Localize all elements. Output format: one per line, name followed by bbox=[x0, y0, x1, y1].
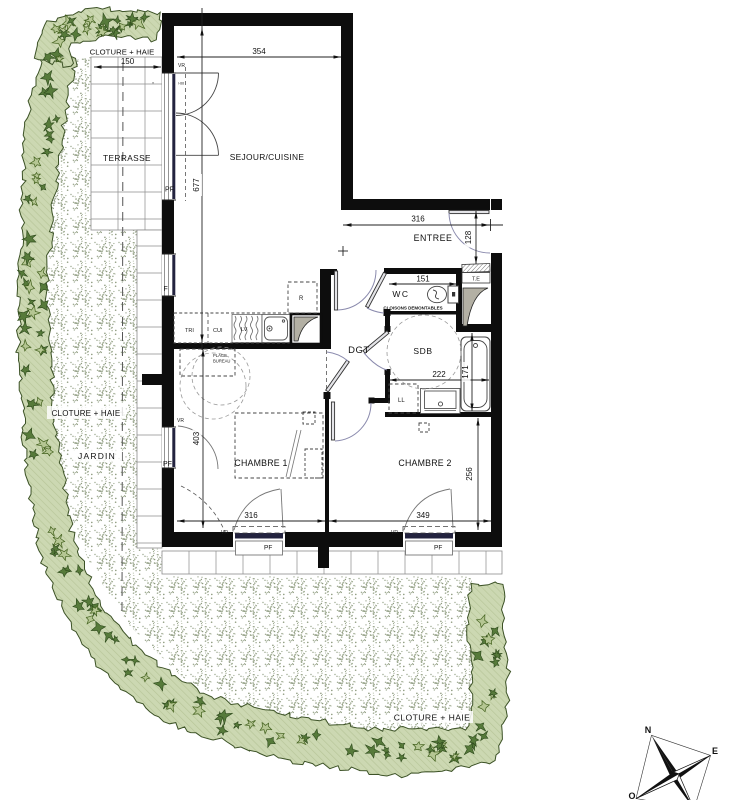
svg-text:N: N bbox=[645, 725, 652, 735]
svg-text:316: 316 bbox=[244, 511, 258, 520]
svg-text:ENTREE: ENTREE bbox=[414, 233, 453, 243]
svg-text:CLOISONS DEMONTABLES: CLOISONS DEMONTABLES bbox=[383, 306, 442, 311]
svg-text:VR: VR bbox=[221, 530, 228, 536]
svg-text:BUREAU: BUREAU bbox=[213, 359, 230, 364]
svg-text:F: F bbox=[164, 286, 168, 293]
svg-text:LV: LV bbox=[241, 327, 248, 333]
svg-text:PF: PF bbox=[434, 545, 442, 552]
svg-text:PLAGE: PLAGE bbox=[213, 353, 227, 358]
svg-text:E: E bbox=[712, 746, 718, 756]
svg-text:222: 222 bbox=[432, 370, 446, 379]
svg-text:R: R bbox=[299, 296, 304, 302]
svg-text:SEJOUR/CUISINE: SEJOUR/CUISINE bbox=[230, 152, 305, 162]
svg-text:I-88: I-88 bbox=[178, 82, 184, 86]
svg-text:150: 150 bbox=[121, 57, 135, 66]
svg-text:VR: VR bbox=[391, 530, 398, 536]
svg-text:CLOTURE + HAIE: CLOTURE + HAIE bbox=[394, 713, 471, 723]
svg-text:DGT: DGT bbox=[348, 345, 370, 356]
svg-text:151: 151 bbox=[416, 275, 430, 284]
svg-text:171: 171 bbox=[461, 365, 470, 379]
svg-text:CHAMBRE 1: CHAMBRE 1 bbox=[234, 458, 287, 468]
svg-text:CUI: CUI bbox=[213, 328, 223, 334]
svg-text:PF: PF bbox=[264, 545, 272, 552]
svg-text:PF: PF bbox=[165, 187, 174, 194]
svg-text:TRI: TRI bbox=[185, 328, 194, 334]
svg-text:VR: VR bbox=[177, 418, 184, 424]
svg-text:LL: LL bbox=[398, 398, 405, 404]
svg-text:SDB: SDB bbox=[413, 346, 432, 356]
svg-text:O: O bbox=[628, 791, 635, 800]
svg-text:TERRASSE: TERRASSE bbox=[103, 153, 151, 163]
svg-text:128: 128 bbox=[464, 230, 473, 244]
svg-text:PF: PF bbox=[163, 461, 172, 468]
svg-text:JARDIN: JARDIN bbox=[78, 451, 116, 461]
svg-text:CLOTURE + HAIE: CLOTURE + HAIE bbox=[90, 48, 155, 57]
svg-text:CLOTURE + HAIE: CLOTURE + HAIE bbox=[52, 409, 121, 418]
svg-text:354: 354 bbox=[252, 47, 266, 56]
svg-text:VR: VR bbox=[178, 63, 185, 69]
svg-text:CHAMBRE 2: CHAMBRE 2 bbox=[398, 458, 451, 468]
svg-text:349: 349 bbox=[416, 511, 430, 520]
svg-text:T.E: T.E bbox=[472, 277, 480, 283]
svg-text:256: 256 bbox=[465, 467, 474, 481]
svg-text:403: 403 bbox=[192, 431, 201, 445]
svg-text:316: 316 bbox=[411, 215, 425, 224]
svg-text:677: 677 bbox=[192, 178, 201, 192]
svg-text:WC: WC bbox=[392, 289, 409, 299]
